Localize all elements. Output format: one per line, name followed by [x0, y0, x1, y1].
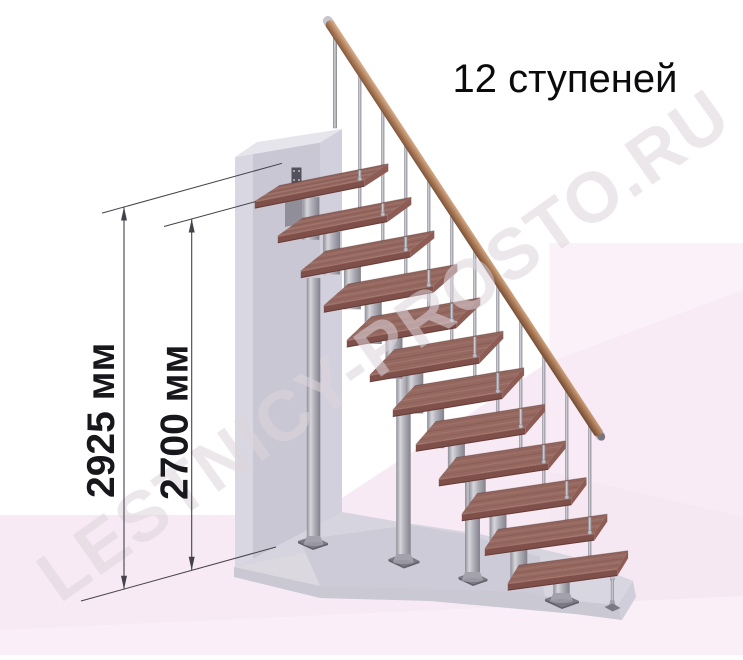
svg-text:2700 мм: 2700 мм: [154, 345, 197, 500]
svg-text:12 ступеней: 12 ступеней: [453, 57, 678, 101]
svg-text:2925 мм: 2925 мм: [80, 343, 123, 498]
